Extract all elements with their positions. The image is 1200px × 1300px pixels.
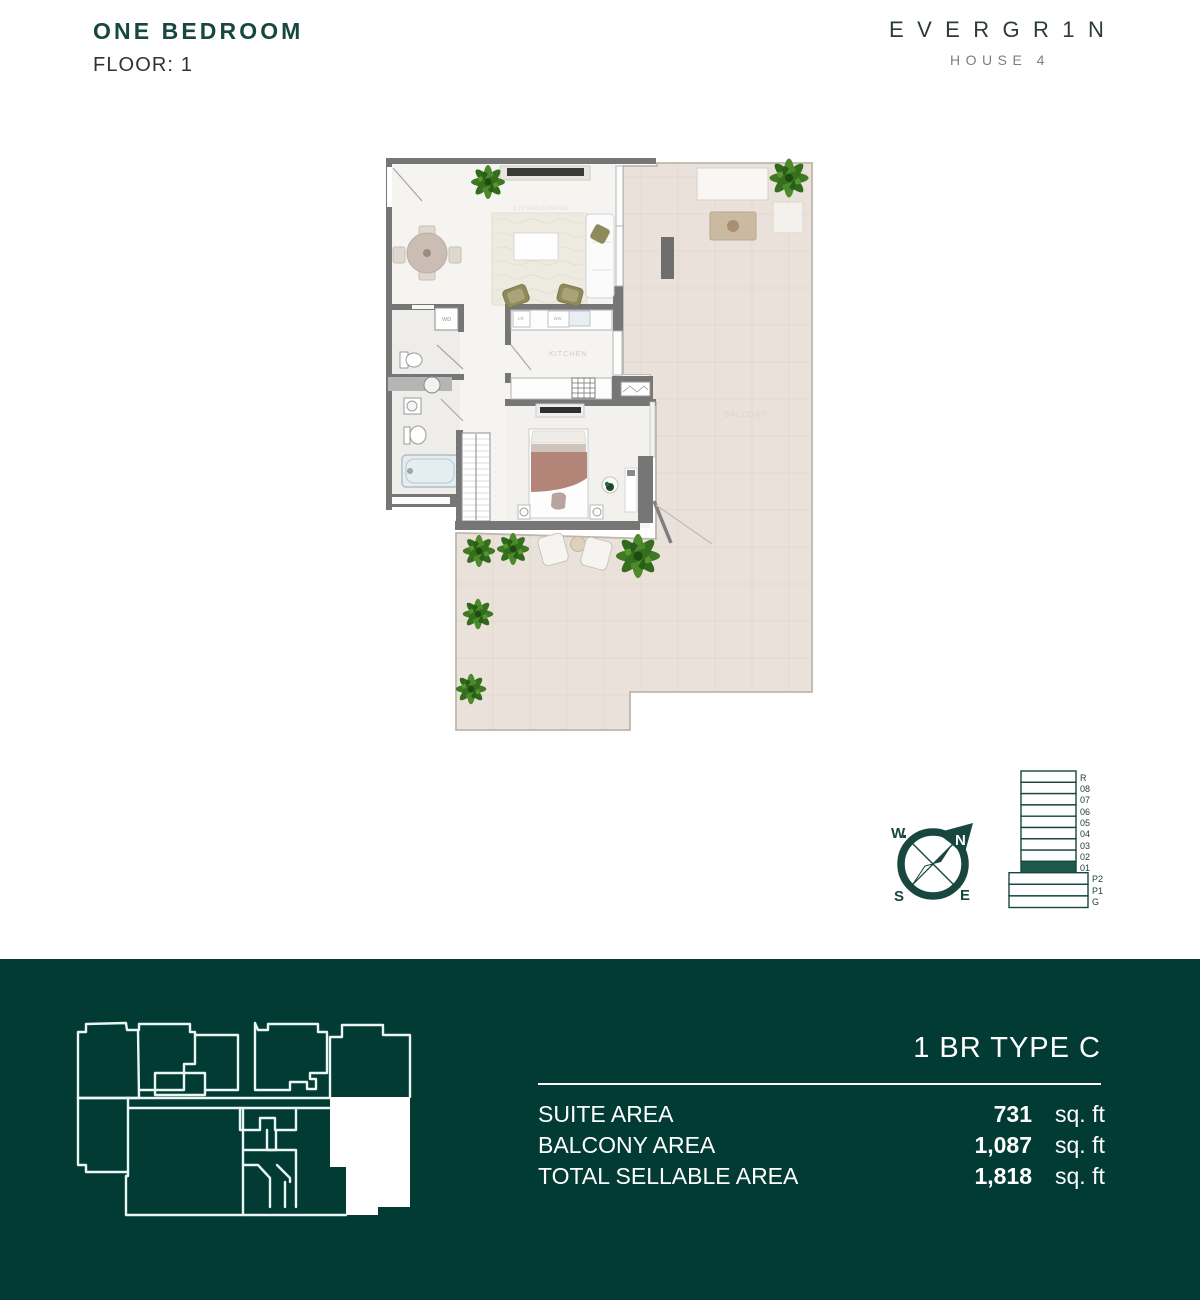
svg-text:R: R: [1080, 773, 1087, 783]
svg-text:05: 05: [1080, 818, 1090, 828]
svg-text:S: S: [894, 888, 904, 905]
svg-text:08: 08: [1080, 784, 1090, 794]
svg-text:07: 07: [1080, 795, 1090, 805]
svg-text:DW: DW: [554, 316, 562, 321]
svg-text:WD: WD: [442, 317, 451, 323]
svg-text:P2: P2: [1092, 874, 1103, 884]
svg-text:BALCONY: BALCONY: [724, 410, 768, 419]
svg-text:KITCHEN: KITCHEN: [549, 349, 588, 358]
svg-text:LIVING/DINING: LIVING/DINING: [514, 205, 569, 212]
svg-text:G: G: [1092, 897, 1099, 907]
svg-text:N: N: [955, 832, 966, 849]
svg-text:01: 01: [1080, 863, 1090, 873]
svg-text:W: W: [891, 825, 906, 842]
svg-text:P1: P1: [1092, 886, 1103, 896]
svg-text:LR: LR: [518, 316, 525, 321]
svg-text:03: 03: [1080, 841, 1090, 851]
svg-text:06: 06: [1080, 807, 1090, 817]
svg-text:02: 02: [1080, 852, 1090, 862]
svg-text:04: 04: [1080, 829, 1090, 839]
svg-text:E: E: [960, 887, 970, 904]
